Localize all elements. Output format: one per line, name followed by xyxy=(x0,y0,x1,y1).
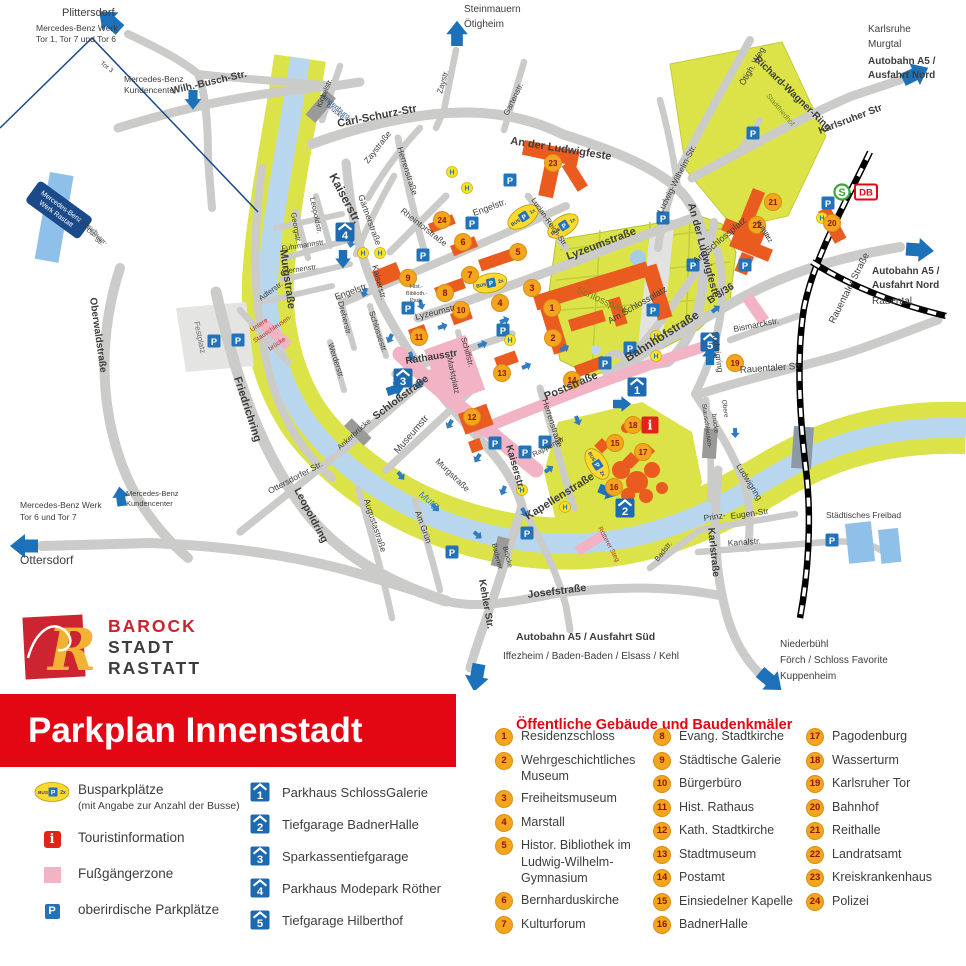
bus-stop-marker: H xyxy=(447,167,458,178)
building-label: Einsiedelner Kapelle xyxy=(679,893,793,910)
poi-marker: 21 xyxy=(765,194,782,211)
surface-parking-marker: P xyxy=(466,217,479,230)
building-label: Bernharduskirche xyxy=(521,892,619,909)
oneway-arrow xyxy=(437,321,449,333)
map-label: Obere xyxy=(720,399,729,418)
building-number: 12 xyxy=(653,822,671,840)
legend-item-tourist-information: iTouristinformation xyxy=(26,828,258,850)
surface-parking-marker: P xyxy=(208,335,221,348)
legend-item-surface-parking: Poberirdische Parkplätze xyxy=(26,900,258,922)
surface-parking-marker: P xyxy=(497,324,510,337)
building-number: 19 xyxy=(806,775,824,793)
map-label: Niederbühl xyxy=(780,639,828,650)
building-item-7: 7Kulturforum xyxy=(495,916,655,934)
svg-text:P: P xyxy=(211,337,217,347)
parkplan-page: Mercedes-Benz Werk Rastatt PPPPPPPPPPPPP… xyxy=(0,0,966,966)
map-label: Rauental xyxy=(872,296,912,307)
map-label: Autobahn A5 / Ausfahrt Süd xyxy=(516,631,655,643)
building-item-4: 4Marstall xyxy=(495,814,655,832)
map-label: Josefstraße xyxy=(527,582,587,601)
map-label: Park xyxy=(410,298,422,304)
building-label: Freiheitsmuseum xyxy=(521,790,617,807)
pedestrian-zone-icon xyxy=(26,864,78,886)
garage-marker: 3 xyxy=(251,847,270,867)
oneway-arrow xyxy=(520,360,533,372)
svg-text:24: 24 xyxy=(438,216,447,225)
building-label: Polizei xyxy=(832,893,869,910)
svg-text:H: H xyxy=(562,505,567,512)
legend-garage-2: 2Tiefgarage BadnerHalle xyxy=(250,814,460,834)
map-label: Hist.- xyxy=(410,284,423,290)
building-number: 6 xyxy=(495,892,513,910)
svg-text:H: H xyxy=(377,251,382,258)
building-label: Postamt xyxy=(679,869,725,886)
building xyxy=(612,461,630,479)
building-label: Karlsruher Tor xyxy=(832,775,910,792)
map-label: Tor 6 und Tor 7 xyxy=(20,512,77,522)
svg-text:BUS: BUS xyxy=(38,790,49,796)
tourist-information-icon: i xyxy=(26,828,78,850)
svg-text:2: 2 xyxy=(257,822,263,834)
poi-marker: 7 xyxy=(462,267,479,284)
building-label: Histor. Bibliothek im Ludwig-Wilhelm-Gym… xyxy=(521,837,655,887)
poi-marker: 15 xyxy=(607,435,624,452)
page-title: Parkplan Innenstadt xyxy=(0,694,456,767)
building-item-15: 15Einsiedelner Kapelle xyxy=(653,893,805,911)
poi-marker: 5 xyxy=(510,244,527,261)
svg-text:5: 5 xyxy=(515,247,520,257)
bus-stop-marker: H xyxy=(375,248,386,259)
surface-parking-marker: P xyxy=(647,304,660,317)
logo-line-barock: BAROCK xyxy=(108,616,201,637)
svg-text:P: P xyxy=(51,790,56,797)
map-label: Autobahn A5 / xyxy=(872,266,940,277)
building-number: 4 xyxy=(495,814,513,832)
poi-marker: 16 xyxy=(606,479,623,496)
svg-text:P: P xyxy=(492,439,498,449)
legend-label: Busparkplätze xyxy=(78,782,240,798)
bus-parking-icon: BUSP2x xyxy=(26,780,78,804)
surface-parking-marker: P xyxy=(232,334,245,347)
svg-text:P: P xyxy=(469,219,475,229)
building-item-10: 10Bürgerbüro xyxy=(653,775,805,793)
poi-marker: 12 xyxy=(464,409,481,426)
legend-garage-1: 1Parkhaus SchlossGalerie xyxy=(250,782,460,802)
garage-marker: 1 xyxy=(251,783,270,803)
map-label: Förch / Schloss Favorite xyxy=(780,655,888,666)
building-label: Wehrgeschichtliches Museum xyxy=(521,752,655,785)
building-label: Kath. Stadtkirche xyxy=(679,822,774,839)
svg-text:2x: 2x xyxy=(60,790,66,796)
map-label: Karlsruhe xyxy=(868,24,911,35)
building-number: 18 xyxy=(806,752,824,770)
building-label: Kulturforum xyxy=(521,916,586,933)
map-label: Dreherstr. xyxy=(336,300,353,336)
building-number: 16 xyxy=(653,916,671,934)
building-label: Landratsamt xyxy=(832,846,901,863)
svg-text:4: 4 xyxy=(497,298,502,308)
logo-r-icon: R xyxy=(22,608,96,686)
surface-parking-marker: P xyxy=(521,527,534,540)
map-label: Mercedes-Benz Werk xyxy=(36,23,118,33)
map-label: Leopoldring xyxy=(291,486,330,545)
map-label: Ausfahrt Nord xyxy=(872,280,939,291)
svg-text:P: P xyxy=(650,306,656,316)
building xyxy=(845,521,875,563)
map-label: Städtisches Freibad xyxy=(826,510,901,520)
surface-parking-marker: P xyxy=(446,546,459,559)
building-item-11: 11Hist. Rathaus xyxy=(653,799,805,817)
garage-label: Tiefgarage BadnerHalle xyxy=(282,817,419,832)
building-item-2: 2Wehrgeschichtliches Museum xyxy=(495,752,655,785)
svg-text:13: 13 xyxy=(498,369,507,378)
tourist-info-marker: i xyxy=(642,417,659,434)
bus-stop-marker: H xyxy=(358,248,369,259)
building-label: Wasserturm xyxy=(832,752,899,769)
svg-text:9: 9 xyxy=(405,273,410,283)
svg-text:S: S xyxy=(838,187,845,199)
map-label: Murgtal xyxy=(868,39,901,50)
svg-text:10: 10 xyxy=(457,306,466,315)
building-label: Reithalle xyxy=(832,822,881,839)
legend-item-bus-parking: BUSP2xBusparkplätze(mit Angabe zur Anzah… xyxy=(26,780,258,814)
building-item-1: 1Residenzschloss xyxy=(495,728,655,746)
svg-text:8: 8 xyxy=(442,288,447,298)
svg-text:P: P xyxy=(420,251,426,261)
poi-marker: 11 xyxy=(411,329,428,346)
surface-parking-marker: P xyxy=(489,437,502,450)
legend-garage-4: 4Parkhaus Modepark Röther xyxy=(250,878,460,898)
building-item-21: 21Reithalle xyxy=(806,822,962,840)
surface-parking-marker: P xyxy=(519,446,532,459)
building-item-20: 20Bahnhof xyxy=(806,799,962,817)
svg-text:6: 6 xyxy=(460,237,465,247)
oneway-arrow xyxy=(497,484,509,497)
building-item-16: 16BadnerHalle xyxy=(653,916,805,934)
svg-text:H: H xyxy=(653,354,658,361)
map-label: Engelstr. xyxy=(471,197,507,218)
svg-text:P: P xyxy=(829,536,835,546)
map-label: Mercedes-Benz Werk xyxy=(20,500,102,510)
building-number: 5 xyxy=(495,837,513,855)
poi-marker: 24 xyxy=(434,212,451,229)
legend-label: oberirdische Parkplätze xyxy=(78,902,219,918)
garage-marker: 5 xyxy=(251,911,270,931)
svg-text:19: 19 xyxy=(731,359,740,368)
surface-parking-marker: P xyxy=(417,249,430,262)
map-label: Rauentaler Str. xyxy=(739,361,803,376)
building-label: Bürgerbüro xyxy=(679,775,742,792)
poi-marker: 8 xyxy=(437,285,454,302)
svg-text:P: P xyxy=(405,304,411,314)
svg-text:1: 1 xyxy=(257,790,264,802)
legend-sublabel: (mit Angabe zur Anzahl der Busse) xyxy=(78,798,240,814)
svg-text:P: P xyxy=(449,548,455,558)
garage-label: Parkhaus SchlossGalerie xyxy=(282,785,428,800)
svg-text:H: H xyxy=(360,251,365,258)
building-label: Residenzschloss xyxy=(521,728,615,745)
building-number: 15 xyxy=(653,893,671,911)
building-label: Pagodenburg xyxy=(832,728,907,745)
garage-label: Sparkassentiefgarage xyxy=(282,849,408,864)
map-label: Kuppenheim xyxy=(780,671,836,682)
svg-text:P: P xyxy=(524,529,530,539)
building-item-3: 3Freiheitsmuseum xyxy=(495,790,655,808)
building-number: 23 xyxy=(806,869,824,887)
building-label: Evang. Stadtkirche xyxy=(679,728,784,745)
map-label: Iffezheim / Baden-Baden / Elsass / Kehl xyxy=(503,651,679,662)
sbahn-db-icons: SDB xyxy=(835,185,878,200)
garage-marker: 2 xyxy=(616,499,635,519)
buildings-column-3: 17Pagodenburg18Wasserturm19Karlsruher To… xyxy=(806,728,962,916)
svg-text:2: 2 xyxy=(622,506,628,518)
surface-parking-marker: P xyxy=(826,534,839,547)
building-label: BadnerHalle xyxy=(679,916,748,933)
buildings-column-1: 1Residenzschloss2Wehrgeschichtliches Mus… xyxy=(495,728,655,939)
poi-marker: 18 xyxy=(625,417,642,434)
map-label: Werderstr. xyxy=(326,342,346,380)
surface-parking-marker: P xyxy=(822,197,835,210)
building-item-5: 5Histor. Bibliothek im Ludwig-Wilhelm-Gy… xyxy=(495,837,655,887)
building xyxy=(644,462,660,478)
svg-text:H: H xyxy=(507,338,512,345)
poi-marker: 4 xyxy=(492,295,509,312)
map-label: Biblioth.- xyxy=(406,291,428,297)
poi-marker: 1 xyxy=(544,300,561,317)
building-item-13: 13Stadtmuseum xyxy=(653,846,805,864)
map-label: Zaystraße xyxy=(362,129,394,166)
svg-text:2: 2 xyxy=(550,333,555,343)
legend-garages: 1Parkhaus SchlossGalerie2Tiefgarage Badn… xyxy=(250,782,460,942)
building xyxy=(656,482,668,494)
surface-parking-marker: P xyxy=(504,174,517,187)
building-number: 1 xyxy=(495,728,513,746)
legend-label: Fußgängerzone xyxy=(78,866,173,882)
svg-text:DB: DB xyxy=(859,188,873,199)
building-number: 11 xyxy=(653,799,671,817)
poi-marker: 13 xyxy=(494,365,511,382)
svg-text:i: i xyxy=(648,419,653,434)
bus-stop-marker: H xyxy=(651,351,662,362)
map-label: Tor 3 xyxy=(99,60,115,75)
map-label: Kundencenter xyxy=(124,85,177,95)
map-label: Steinmauern xyxy=(464,4,521,15)
svg-text:3: 3 xyxy=(257,854,263,866)
building-item-6: 6Bernharduskirche xyxy=(495,892,655,910)
logo-line-stadt: STADT xyxy=(108,637,201,658)
logo-wordmark: BAROCK STADT RASTATT xyxy=(108,616,201,679)
building-label: Bahnhof xyxy=(832,799,879,816)
svg-text:H: H xyxy=(464,186,469,193)
building-item-17: 17Pagodenburg xyxy=(806,728,962,746)
svg-text:H: H xyxy=(449,170,454,177)
building-number: 7 xyxy=(495,916,513,934)
building-number: 10 xyxy=(653,775,671,793)
map-label: Mercedes-Benz xyxy=(124,74,184,84)
building-label: Kreiskrankenhaus xyxy=(832,869,932,886)
garage-label: Parkhaus Modepark Röther xyxy=(282,881,441,896)
bus-stop-marker: H xyxy=(560,502,571,513)
building-label: Marstall xyxy=(521,814,565,831)
bus-parking-marker: BUSP2x xyxy=(35,783,69,802)
building-number: 2 xyxy=(495,752,513,770)
svg-text:5: 5 xyxy=(257,918,264,930)
legend-item-pedestrian-zone: Fußgängerzone xyxy=(26,864,258,886)
city-map: Mercedes-Benz Werk Rastatt PPPPPPPPPPPPP… xyxy=(0,0,966,690)
svg-text:4: 4 xyxy=(342,230,349,242)
building-number: 17 xyxy=(806,728,824,746)
building-item-22: 22Landratsamt xyxy=(806,846,962,864)
surface-parking-marker: P xyxy=(599,357,612,370)
svg-text:21: 21 xyxy=(769,198,778,207)
map-label: Ötigheim xyxy=(464,18,504,30)
building-label: Hist. Rathaus xyxy=(679,799,754,816)
oneway-arrow xyxy=(731,428,740,438)
svg-text:1: 1 xyxy=(549,303,554,313)
surface-parking-marker: P xyxy=(747,127,760,140)
building-number: 14 xyxy=(653,869,671,887)
poi-marker: 2 xyxy=(545,330,562,347)
svg-text:15: 15 xyxy=(611,439,620,448)
poi-marker: 3 xyxy=(524,280,541,297)
svg-text:23: 23 xyxy=(549,159,558,168)
oneway-arrow xyxy=(471,452,484,465)
svg-text:18: 18 xyxy=(629,421,638,430)
legend-garage-3: 3Sparkassentiefgarage xyxy=(250,846,460,866)
building-item-19: 19Karlsruher Tor xyxy=(806,775,962,793)
svg-text:P: P xyxy=(507,176,513,186)
page-title-banner: Parkplan Innenstadt xyxy=(0,694,456,767)
svg-text:20: 20 xyxy=(828,219,837,228)
map-label: Gartenstr. xyxy=(502,81,525,117)
map-label: Mercedes-Benz xyxy=(126,489,179,498)
city-logo: R BAROCK STADT RASTATT xyxy=(22,602,282,692)
surface-parking-icon: P xyxy=(26,900,78,922)
surface-parking-marker: P xyxy=(739,259,752,272)
building-number: 20 xyxy=(806,799,824,817)
map-label: Murgstraße xyxy=(434,456,472,494)
building-item-9: 9Städtische Galerie xyxy=(653,752,805,770)
garage-marker: 4 xyxy=(251,879,270,899)
svg-text:1: 1 xyxy=(634,385,641,397)
building-item-18: 18Wasserturm xyxy=(806,752,962,770)
direction-arrow xyxy=(905,237,935,263)
map-label: Kundencenter xyxy=(126,499,173,508)
building-item-24: 24Polizei xyxy=(806,893,962,911)
building-label: Städtische Galerie xyxy=(679,752,781,769)
map-label: Tor 1, Tor 7 und Tor 6 xyxy=(36,34,116,44)
building-item-14: 14Postamt xyxy=(653,869,805,887)
garage-label: Tiefgarage Hilberthof xyxy=(282,913,403,928)
legend-label: Touristinformation xyxy=(78,830,185,846)
building-number: 24 xyxy=(806,893,824,911)
building-item-8: 8Evang. Stadtkirche xyxy=(653,728,805,746)
building xyxy=(562,160,588,192)
poi-marker: 23 xyxy=(545,155,562,172)
svg-text:P: P xyxy=(750,129,756,139)
poi-marker: 20 xyxy=(824,215,841,232)
building-number: 3 xyxy=(495,790,513,808)
svg-text:7: 7 xyxy=(467,270,472,280)
building xyxy=(639,489,653,503)
svg-text:4: 4 xyxy=(257,886,264,898)
building-number: 22 xyxy=(806,846,824,864)
svg-text:P: P xyxy=(602,359,608,369)
svg-text:3: 3 xyxy=(529,283,534,293)
bus-stop-marker: H xyxy=(462,183,473,194)
garage-marker: 1 xyxy=(628,378,647,398)
svg-text:P: P xyxy=(500,326,506,336)
svg-text:P: P xyxy=(825,199,831,209)
building-label: Stadtmuseum xyxy=(679,846,756,863)
building xyxy=(878,528,901,564)
building-item-23: 23Kreiskrankenhaus xyxy=(806,869,962,887)
map-label: Plittersdorf xyxy=(62,7,116,19)
svg-text:P: P xyxy=(235,336,241,346)
svg-text:17: 17 xyxy=(639,448,648,457)
svg-text:12: 12 xyxy=(468,413,477,422)
building-item-12: 12Kath. Stadtkirche xyxy=(653,822,805,840)
poi-marker: 6 xyxy=(455,234,472,251)
building-number: 8 xyxy=(653,728,671,746)
building-number: 13 xyxy=(653,846,671,864)
legend-symbols: BUSP2xBusparkplätze(mit Angabe zur Anzah… xyxy=(26,780,258,936)
map-label: Autobahn A5 / xyxy=(868,56,936,67)
building-number: 21 xyxy=(806,822,824,840)
svg-text:P: P xyxy=(742,261,748,271)
svg-text:11: 11 xyxy=(415,333,424,342)
buildings-column-2: 8Evang. Stadtkirche9Städtische Galerie10… xyxy=(653,728,805,940)
bus-stop-marker: H xyxy=(505,335,516,346)
garage-marker: 4 xyxy=(336,223,355,243)
legend-garage-5: 5Tiefgarage Hilberthof xyxy=(250,910,460,930)
map-label: Ausfahrt Nord xyxy=(868,70,935,81)
building-number: 9 xyxy=(653,752,671,770)
svg-text:16: 16 xyxy=(610,483,619,492)
poi-marker: 17 xyxy=(635,444,652,461)
logo-line-rastatt: RASTATT xyxy=(108,658,201,679)
map-label: Ottersdorf xyxy=(20,553,74,567)
garage-marker: 2 xyxy=(251,815,270,835)
svg-text:P: P xyxy=(522,448,528,458)
